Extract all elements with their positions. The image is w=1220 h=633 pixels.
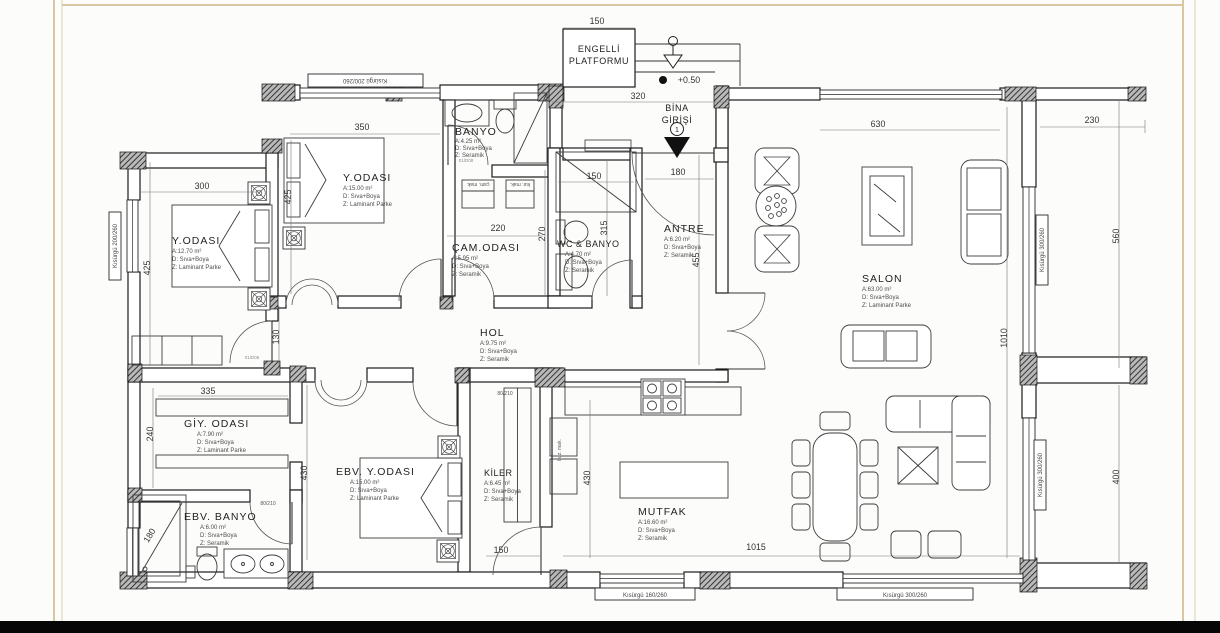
round-table bbox=[756, 186, 796, 226]
svg-text:KİLER: KİLER bbox=[484, 468, 513, 478]
svg-text:A:12.70 m²: A:12.70 m² bbox=[172, 249, 201, 255]
svg-text:A:5.95 m²: A:5.95 m² bbox=[452, 256, 478, 262]
entry-label-2: GİRİŞİ bbox=[662, 115, 693, 125]
svg-text:D: Sıva+Boya: D: Sıva+Boya bbox=[172, 257, 210, 263]
dim-salon-h: 1010 bbox=[999, 328, 1009, 348]
svg-text:Z: Laminant Parke: Z: Laminant Parke bbox=[343, 202, 393, 208]
svg-text:MUTFAK: MUTFAK bbox=[638, 506, 687, 518]
sofa-right bbox=[961, 160, 1008, 264]
svg-text:EBV. Y.ODASI: EBV. Y.ODASI bbox=[336, 466, 415, 478]
dryer-label: kur. mak. bbox=[510, 181, 530, 187]
svg-text:D: Sıva+Boya: D: Sıva+Boya bbox=[200, 533, 238, 539]
window-label-bottom-left: Kısürgü 160/260 bbox=[623, 593, 668, 599]
svg-text:A:9.75 m²: A:9.75 m² bbox=[480, 341, 506, 347]
dim-wc-h: 315 bbox=[599, 221, 609, 236]
entry-number: 1 bbox=[675, 127, 679, 134]
stove bbox=[641, 379, 685, 415]
svg-text:BANYO: BANYO bbox=[455, 126, 497, 138]
svg-text:Z: Laminant Parke: Z: Laminant Parke bbox=[172, 265, 222, 271]
svg-text:D: Sıva+Boya: D: Sıva+Boya bbox=[452, 264, 490, 270]
room-label-mutfak: MUTFAK A:16.60 m² D: Sıva+Boya Z: Serami… bbox=[638, 506, 687, 542]
dim-mutfak-h: 430 bbox=[582, 471, 592, 486]
svg-text:Z: Seramik: Z: Seramik bbox=[200, 541, 230, 547]
svg-text:D: Sıva+Boya: D: Sıva+Boya bbox=[350, 488, 388, 494]
svg-text:D: Sıva+Boya: D: Sıva+Boya bbox=[455, 146, 493, 152]
side-table bbox=[898, 447, 938, 484]
dim-ebv-shower: 180 bbox=[141, 526, 157, 544]
svg-text:Z: Seramik: Z: Seramik bbox=[638, 536, 668, 542]
fridge bbox=[550, 418, 577, 456]
svg-text:D: Sıva+Boya: D: Sıva+Boya bbox=[197, 440, 235, 446]
dim-ebv-h: 430 bbox=[299, 466, 309, 481]
dim-cam-w: 220 bbox=[491, 223, 506, 233]
svg-text:D: Sıva+Boya: D: Sıva+Boya bbox=[484, 489, 522, 495]
level-label: +0.50 bbox=[678, 75, 700, 85]
svg-text:A:15.00 m²: A:15.00 m² bbox=[350, 480, 379, 486]
svg-text:Z: Laminant Parke: Z: Laminant Parke bbox=[350, 496, 400, 502]
window-label-right-upper: Kısürgü 300/260 bbox=[1040, 227, 1046, 272]
dim-antre-h: 455 bbox=[691, 253, 701, 268]
door-tag-kiler: 80/210 bbox=[497, 391, 513, 397]
svg-text:Z: Seramik: Z: Seramik bbox=[480, 357, 510, 363]
svg-text:D: Sıva+Boya: D: Sıva+Boya bbox=[862, 295, 900, 301]
door-code-banyo: 01/D08 bbox=[459, 158, 474, 163]
svg-text:A:6.20 m²: A:6.20 m² bbox=[664, 237, 690, 243]
armchair-2 bbox=[755, 226, 799, 272]
room-label-giy-odasi: GİY. ODASI A:7.90 m² D: Sıva+Boya Z: Lam… bbox=[184, 417, 249, 454]
dim-salon-window: 630 bbox=[871, 119, 886, 129]
svg-text:A:4.25 m²: A:4.25 m² bbox=[455, 139, 481, 145]
dim-yodasi1-h: 425 bbox=[142, 261, 152, 276]
svg-text:A:4.70 m²: A:4.70 m² bbox=[565, 252, 591, 258]
door-tag-ebv-banyo: 80/210 bbox=[260, 501, 276, 507]
dim-yodasi2-w: 350 bbox=[355, 122, 370, 132]
dim-terrace-top: 230 bbox=[1085, 115, 1100, 125]
svg-text:D: Sıva+Boya: D: Sıva+Boya bbox=[565, 260, 603, 266]
window-label-top: Kısürgü 200/260 bbox=[342, 77, 387, 83]
washer-label: çam. mak. bbox=[466, 181, 489, 187]
window-label-right-lower: Kısürgü 300/260 bbox=[1038, 452, 1044, 497]
svg-text:Z: Laminant Parke: Z: Laminant Parke bbox=[862, 303, 912, 309]
svg-text:A:15.00 m²: A:15.00 m² bbox=[343, 186, 372, 192]
platform-label-1: ENGELLİ bbox=[578, 44, 620, 54]
appliance-box bbox=[550, 459, 577, 494]
dim-cam-h: 270 bbox=[537, 227, 547, 242]
svg-text:Y.ODASI: Y.ODASI bbox=[172, 235, 220, 247]
ottoman-2 bbox=[928, 531, 961, 558]
svg-text:D: Sıva+Boya: D: Sıva+Boya bbox=[480, 349, 518, 355]
room-label-salon: SALON A:63.00 m² D: Sıva+Boya Z: Laminan… bbox=[862, 273, 912, 309]
window-label-bottom-right: Kısürgü 300/260 bbox=[883, 593, 928, 599]
room-label-yodasi2: Y.ODASI A:15.00 m² D: Sıva+Boya Z: Lamin… bbox=[343, 172, 393, 208]
svg-text:A:16.60 m²: A:16.60 m² bbox=[638, 520, 667, 526]
window-label-left: Kısürgü 200/260 bbox=[113, 223, 119, 268]
wall bbox=[128, 153, 278, 168]
room-label-kiler: KİLER A:6.45 m² D: Sıva+Boya Z: Seramik bbox=[484, 468, 522, 503]
dim-yodasi1-door: 130 bbox=[271, 330, 281, 345]
svg-text:A:6.00 m²: A:6.00 m² bbox=[200, 525, 226, 531]
svg-text:A:63.00 m²: A:63.00 m² bbox=[862, 287, 891, 293]
fridge-label: buz. mak. bbox=[557, 439, 563, 461]
entry-label-1: BİNA bbox=[665, 103, 688, 113]
closet-shelf-top bbox=[156, 399, 288, 416]
column-symbol bbox=[248, 288, 270, 310]
svg-text:WC & BANYO: WC & BANYO bbox=[557, 239, 620, 249]
level-marker-icon bbox=[659, 76, 667, 84]
svg-text:A:6.45 m²: A:6.45 m² bbox=[484, 481, 510, 487]
bottom-bar bbox=[0, 621, 1220, 633]
dim-giy-w: 335 bbox=[201, 386, 216, 396]
svg-text:GİY. ODASI: GİY. ODASI bbox=[184, 417, 249, 430]
room-label-cam-odasi: ÇAM.ODASI A:5.95 m² D: Sıva+Boya Z: Sera… bbox=[452, 242, 520, 278]
svg-text:SALON: SALON bbox=[862, 273, 903, 285]
column-symbol bbox=[248, 182, 270, 204]
svg-text:D: Sıva+Boya: D: Sıva+Boya bbox=[664, 245, 702, 251]
svg-text:Z: Seramik: Z: Seramik bbox=[484, 497, 514, 503]
closet-shelf-bottom bbox=[156, 455, 288, 468]
dim-yodasi2-h: 425 bbox=[283, 190, 293, 205]
svg-text:A:7.90 m²: A:7.90 m² bbox=[197, 432, 223, 438]
dim-giy-h: 240 bbox=[145, 427, 155, 442]
svg-text:Y.ODASI: Y.ODASI bbox=[343, 172, 391, 184]
dim-right-upper: 560 bbox=[1111, 229, 1121, 244]
ottoman-1 bbox=[891, 531, 921, 558]
dining-table bbox=[792, 412, 878, 561]
svg-text:HOL: HOL bbox=[480, 327, 505, 339]
dim-antre-w: 180 bbox=[671, 167, 686, 177]
svg-text:Z: Seramik: Z: Seramik bbox=[664, 253, 694, 259]
column-symbol bbox=[437, 540, 459, 562]
svg-text:D: Sıva+Boya: D: Sıva+Boya bbox=[343, 194, 381, 200]
column-symbol bbox=[283, 227, 305, 249]
dim-mutfak-w: 1015 bbox=[746, 542, 766, 552]
dim-platform: 150 bbox=[590, 16, 605, 26]
floor-plan-drawing: ENGELLİ PLATFORMU 150 320 +0.50 BİNA GİR… bbox=[0, 0, 1220, 633]
wardrobe-yodasi1 bbox=[132, 336, 222, 365]
svg-text:D: Sıva+Boya: D: Sıva+Boya bbox=[638, 528, 676, 534]
svg-text:EBV. BANYO: EBV. BANYO bbox=[184, 511, 257, 523]
dim-yodasi1-w: 300 bbox=[195, 181, 210, 191]
svg-text:Z: Seramik: Z: Seramik bbox=[565, 268, 595, 274]
svg-text:Z: Seramik: Z: Seramik bbox=[452, 272, 482, 278]
svg-text:ANTRE: ANTRE bbox=[664, 223, 705, 235]
room-label-banyo: BANYO A:4.25 m² D: Sıva+Boya Z: Seramik bbox=[455, 126, 497, 159]
svg-text:ÇAM.ODASI: ÇAM.ODASI bbox=[452, 242, 520, 254]
room-label-wc-banyo: WC & BANYO A:4.70 m² D: Sıva+Boya Z: Ser… bbox=[557, 239, 620, 274]
dim-wc-shower: 150 bbox=[587, 171, 602, 181]
room-label-ebv-banyo: EBV. BANYO A:6.00 m² D: Sıva+Boya Z: Ser… bbox=[184, 511, 257, 547]
arch-opening-hol bbox=[286, 279, 338, 305]
door-code-hol: 01/D06 bbox=[245, 355, 260, 360]
svg-text:Z: Laminant Parke: Z: Laminant Parke bbox=[197, 448, 247, 454]
floor-plan-sheet: ENGELLİ PLATFORMU 150 320 +0.50 BİNA GİR… bbox=[0, 0, 1220, 633]
arch-opening-ebv bbox=[315, 380, 367, 406]
sofa-lower bbox=[841, 325, 931, 368]
platform-label-2: PLATFORMU bbox=[569, 56, 629, 66]
dim-right-lower: 400 bbox=[1111, 470, 1121, 485]
kitchen-island bbox=[620, 462, 728, 498]
column-symbol bbox=[438, 436, 460, 458]
dim-kiler-door: 150 bbox=[494, 545, 509, 555]
room-label-hol: HOL A:9.75 m² D: Sıva+Boya Z: Seramik bbox=[480, 327, 518, 363]
dim-entry: 320 bbox=[631, 91, 646, 101]
entry-arrow-icon bbox=[664, 137, 690, 158]
tv-unit bbox=[862, 167, 912, 245]
